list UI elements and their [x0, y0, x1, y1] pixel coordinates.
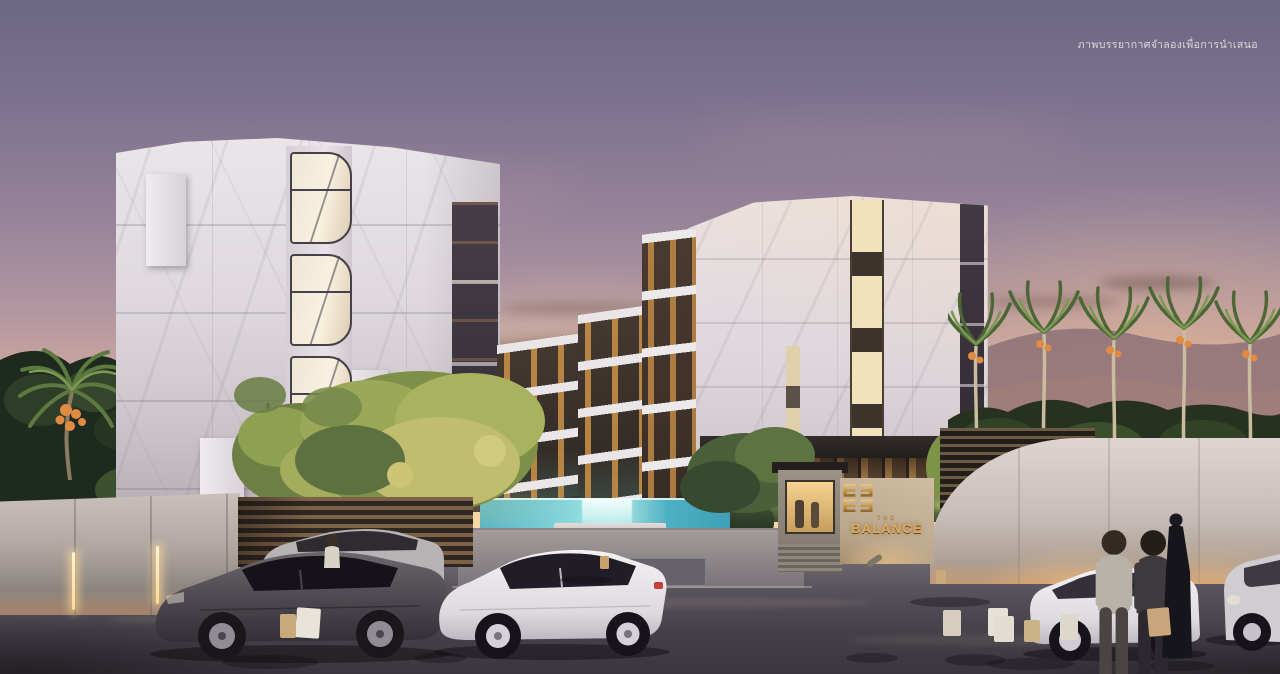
bay-window: [290, 152, 352, 244]
shopping-bag: [295, 607, 321, 639]
shopping-bag: [280, 614, 296, 638]
bay-window: [290, 254, 352, 346]
raised-arm: [866, 553, 883, 568]
pedestrian-at-bench: [324, 534, 340, 568]
slender-tree-leaves: [302, 387, 362, 427]
rendering-canvas: THE BALANCE: [0, 0, 1280, 674]
disclaimer-text: ภาพบรรยากาศจำลองเพื่อการนำเสนอ: [1078, 36, 1258, 53]
shopping-bag: [1060, 614, 1078, 640]
silver-car-right: [1224, 554, 1280, 651]
facade-fin: [146, 174, 186, 266]
street-scene: [0, 490, 1280, 674]
dark-sedan: [156, 552, 447, 660]
shopping-bag: [936, 570, 946, 584]
slender-tree-leaves: [234, 377, 286, 413]
cloud-band: [690, 116, 1080, 160]
shopping-bag: [994, 616, 1014, 642]
shopping-bag: [1024, 620, 1040, 642]
shopping-bag: [600, 556, 609, 569]
white-sports-sedan: [439, 550, 666, 659]
shopping-bag: [943, 610, 961, 636]
